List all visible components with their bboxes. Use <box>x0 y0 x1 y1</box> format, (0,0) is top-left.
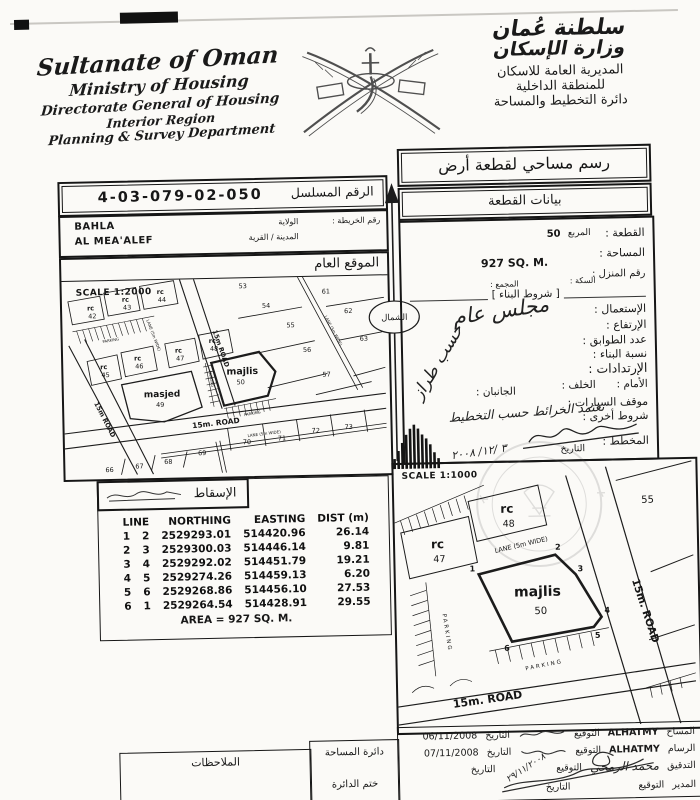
plot-71: 71 <box>278 434 286 442</box>
plot-rc-44: rc <box>157 288 164 296</box>
detail-road-bottom: 15m. ROAD <box>452 688 523 711</box>
col-dist: DIST (m) <box>311 511 375 526</box>
plot-73: 73 <box>344 423 352 431</box>
detail-plan-map: SCALE 1:1000 r <box>393 459 696 729</box>
plot-data-header-box: بيانات القطعة <box>398 183 653 221</box>
plot-42: 42 <box>88 312 96 320</box>
plot-rc-42: rc <box>87 304 94 312</box>
use-handwritten: مجلس عام <box>451 292 551 330</box>
role-label: المدير <box>672 778 696 789</box>
signature-scribble <box>518 728 566 741</box>
plot-46: 46 <box>135 362 143 370</box>
road-label-left: 15m ROAD <box>92 401 117 440</box>
detail-rc-47: rc <box>431 537 444 551</box>
plot-number-value: 50 <box>547 229 561 240</box>
detail-48: 48 <box>503 519 515 530</box>
scan-artifact-blob <box>14 20 29 30</box>
plot-label: القطعة : <box>605 226 645 240</box>
plot-54: 54 <box>262 302 270 310</box>
corner-4: 4 <box>604 606 610 615</box>
planner-date-handwritten: ٣ /١٢/ ٢٠٠٨ <box>451 441 508 462</box>
notes-box: الملاحظات <box>119 749 312 800</box>
corner-6: 6 <box>504 644 510 653</box>
setbacks-label: الإرتدادات : <box>588 360 647 376</box>
front-label: الأمام : <box>616 378 647 391</box>
role-label: الرسام <box>668 742 696 754</box>
calligraphy-line-2: وزارة الإسكان <box>439 35 681 62</box>
plot-72: 72 <box>312 427 320 435</box>
plot-rc-43: rc <box>122 296 129 304</box>
date-label: التاريخ <box>471 764 496 776</box>
detail-plan-scale: SCALE 1:1000 <box>402 470 478 482</box>
plot-66: 66 <box>105 466 113 474</box>
ratio-label: نسبة البناء : <box>593 347 648 361</box>
projection-header: الإسقاط <box>193 484 236 500</box>
detail-lane-label: LANE (5m WIDE) <box>494 535 549 555</box>
corner-5: 5 <box>595 631 601 640</box>
date-label: التاريخ <box>485 729 510 741</box>
stamp-column-box: دائرة المساحة ختم الدائرة <box>309 739 400 800</box>
plot-68: 68 <box>164 458 172 466</box>
oman-emblem-icon <box>288 40 455 145</box>
plot-43: 43 <box>123 304 131 312</box>
detail-parking-bottom: PARKING <box>525 659 564 672</box>
col-line: LINE <box>116 515 155 530</box>
notes-label: الملاحظات <box>120 754 310 771</box>
role-label: المساح <box>666 725 695 737</box>
detail-rc-48: rc <box>500 502 513 516</box>
detail-47: 47 <box>433 554 445 565</box>
col-easting: EASTING <box>237 512 312 528</box>
sides-label: الجانبان : <box>476 386 516 399</box>
plot-50: 50 <box>237 378 245 386</box>
town-label: المدينة / القرية <box>249 232 299 242</box>
projection-section-box: الإسقاط LINE NORTHING EASTING DIST (m) 1… <box>97 475 392 641</box>
detail-road-diag: 15m. ROAD <box>629 577 661 644</box>
plot-62: 62 <box>344 307 352 315</box>
area-label: المساحة : <box>599 246 645 260</box>
location-box: رقم الخريطة : الولاية BAHLA المدينة / ال… <box>58 209 389 258</box>
corner-1: 1 <box>469 564 475 573</box>
use-label: الإستعمال : <box>594 302 646 316</box>
area-value: 927 SQ. M. <box>481 256 548 270</box>
plot-70: 70 <box>243 438 251 446</box>
plot-rc-45: rc <box>100 363 107 371</box>
plot-49: 49 <box>156 401 164 409</box>
wilaya-value: BAHLA <box>74 221 115 233</box>
detail-55: 55 <box>641 495 654 506</box>
ratio-handwritten: حسب طراز <box>408 321 468 403</box>
parking-label-1: PARKING <box>102 336 119 344</box>
signatures-box: المساح ALHATMY التوقيع التاريخ 06/11/200… <box>397 721 700 800</box>
plot-rc-46: rc <box>134 354 141 362</box>
plot-47: 47 <box>176 354 184 362</box>
draftsman-date: 07/11/2008 <box>424 747 479 759</box>
house-number-label: رقم المنزل : <box>592 268 646 280</box>
dept-stamp-label: ختم الدائرة <box>311 778 399 791</box>
detail-50: 50 <box>534 606 547 617</box>
corner-3: 3 <box>577 564 583 573</box>
plot-61: 61 <box>322 287 330 295</box>
projection-table: LINE NORTHING EASTING DIST (m) 12 252929… <box>116 511 376 614</box>
plot-55: 55 <box>286 321 294 329</box>
scanned-survey-document: Sultanate of Oman Ministry of Housing Di… <box>0 0 700 800</box>
plot-69: 69 <box>198 449 206 457</box>
town-value: AL MEA'ALEF <box>75 235 154 248</box>
street-label: السكة : <box>570 276 596 286</box>
detail-majlis: majlis <box>514 584 561 601</box>
planner-signature-scribble <box>520 418 643 453</box>
plot-majlis: majlis <box>226 366 258 378</box>
detail-parking-left: PARKING <box>441 613 453 652</box>
scan-artifact-bar <box>120 12 178 24</box>
floors-label: عدد الطوابق : <box>582 333 647 347</box>
plot-53: 53 <box>239 282 247 290</box>
survey-dept-label: دائرة المساحة <box>310 746 398 759</box>
plot-57: 57 <box>322 370 330 378</box>
drawing-title-box: رسم مساحي لقطعة أرض <box>397 144 652 187</box>
plot-rc-47: rc <box>175 347 182 355</box>
ministry-header-ar: سلطنة عُمان وزارة الإسكان المديرية العام… <box>440 13 680 111</box>
corner-2: 2 <box>555 543 561 552</box>
square-label: المربع <box>568 228 591 238</box>
plot-56: 56 <box>303 346 311 354</box>
surveyor-name: ALHATMY <box>608 726 659 738</box>
back-label: الخلف : <box>561 379 595 392</box>
checker-signature-scribble <box>493 745 664 797</box>
role-label: التدقيق <box>667 759 696 771</box>
plot-45: 45 <box>101 371 109 379</box>
height-label: الإرتفاع : <box>606 318 647 332</box>
surveyor-date: 06/11/2008 <box>422 730 477 742</box>
wilaya-label: الولاية <box>278 217 298 226</box>
plot-67: 67 <box>135 462 143 470</box>
plot-masjed: masjed <box>144 390 181 401</box>
ministry-header-en: Sultanate of Oman Ministry of Housing Di… <box>27 41 292 150</box>
signature-label: التوقيع <box>574 727 600 739</box>
plot-44: 44 <box>158 296 166 304</box>
projection-scribble <box>104 486 182 504</box>
site-plan-map: SCALE 1:2000 <box>61 275 387 476</box>
